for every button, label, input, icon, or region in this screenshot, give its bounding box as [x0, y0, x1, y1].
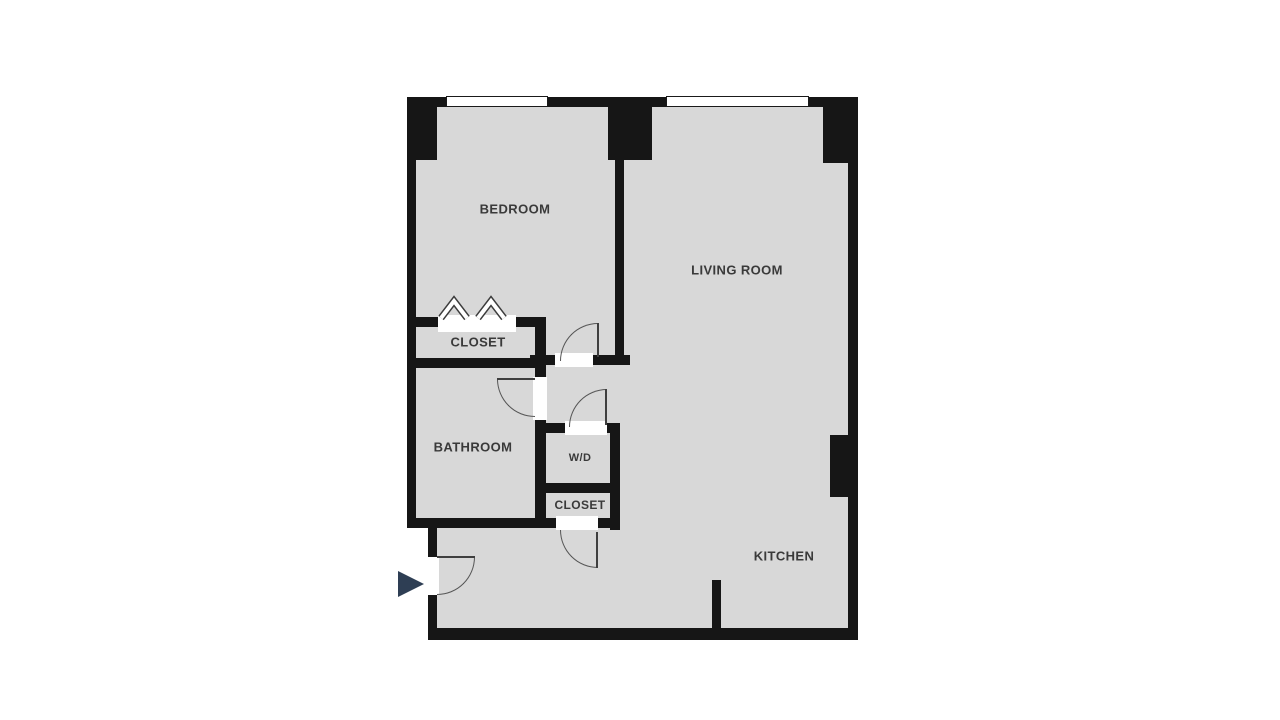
wall-wd-bottom: [546, 483, 620, 493]
door-leaf-entry: [437, 556, 475, 558]
wall-kitchen-divider: [712, 580, 721, 636]
opening-hall-closet-door: [556, 516, 598, 530]
room-label-bedroom-closet: CLOSET: [450, 335, 505, 350]
opening-bathroom-door: [533, 377, 547, 420]
floor-entry-kitchen: [432, 520, 849, 634]
room-label-bedroom: BEDROOM: [480, 202, 551, 217]
door-leaf-hall-closet: [596, 532, 598, 568]
wall-bathroom-top: [407, 358, 546, 368]
wall-bottom: [428, 628, 858, 640]
wall-left: [407, 97, 416, 528]
wall-bedroom-door-left: [530, 355, 555, 365]
entry-arrow-icon: [398, 571, 425, 598]
room-label-wd: W/D: [569, 452, 592, 464]
wall-bedroom-living: [615, 107, 624, 365]
door-leaf-wd: [605, 389, 607, 425]
wall-entry-upper: [428, 528, 437, 557]
room-label-kitchen: KITCHEN: [754, 549, 815, 564]
room-label-living-room: LIVING ROOM: [691, 263, 783, 278]
wall-wd-right: [610, 423, 620, 530]
door-leaf-bedroom: [597, 323, 599, 357]
wall-entry-lower: [428, 595, 437, 628]
room-label-hall-closet: CLOSET: [554, 498, 605, 512]
hanger-icon: [438, 295, 508, 321]
wall-column-right: [830, 435, 850, 497]
door-leaf-bathroom: [497, 378, 535, 380]
floor-plan: BEDROOM LIVING ROOM CLOSET BATHROOM W/D …: [0, 0, 1280, 720]
wall-right: [848, 100, 858, 640]
window-bedroom: [446, 96, 548, 107]
window-living-room: [666, 96, 809, 107]
room-label-bathroom: BATHROOM: [434, 440, 513, 455]
